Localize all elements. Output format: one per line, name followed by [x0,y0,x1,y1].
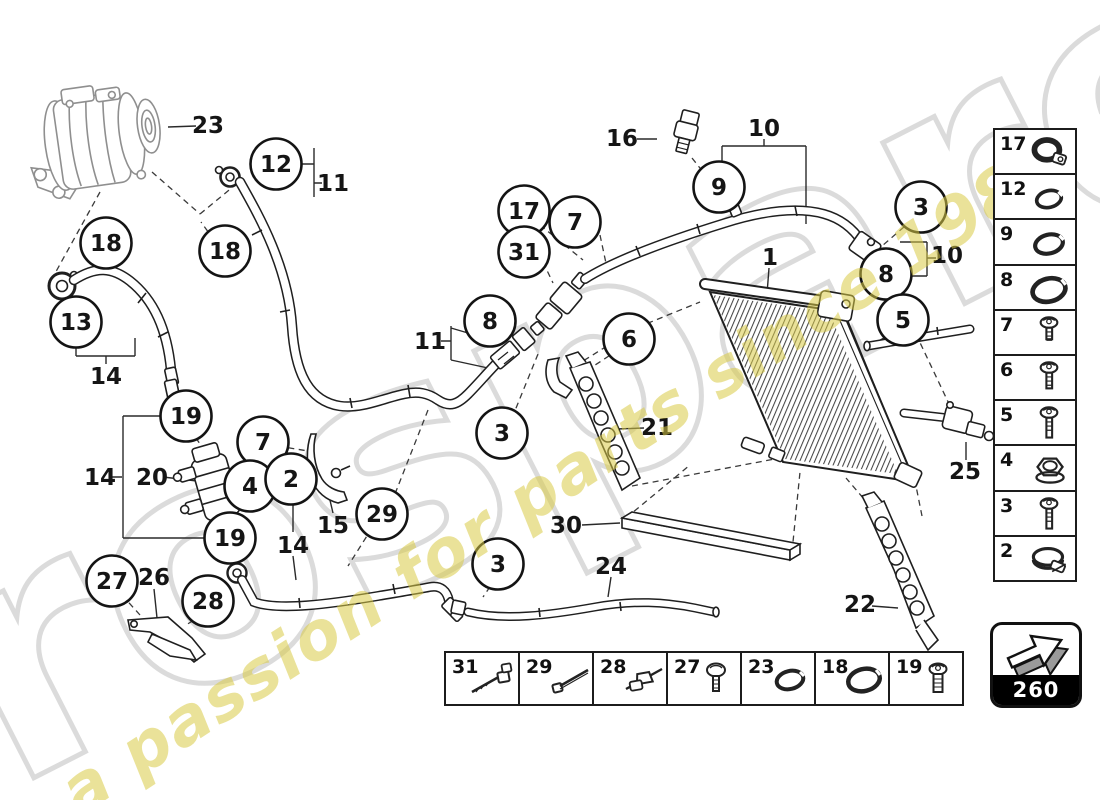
part-label-20: 20 [136,465,168,491]
legend-part-29[interactable]: 29 [518,651,594,706]
legend-part-27[interactable]: 27 [666,651,742,706]
part-label-11: 11 [414,329,446,355]
sidebar-part-5[interactable]: 5 [993,399,1077,446]
svg-text:12: 12 [260,152,292,178]
compressor-part [21,77,168,203]
part-number: 8 [1000,269,1013,291]
svg-text:4: 4 [242,474,258,500]
parts-sidebar: 171298765432 [993,128,1077,582]
part-label-14: 14 [277,533,309,559]
part-number: 4 [1000,449,1013,471]
svg-text:29: 29 [366,502,398,528]
part-number: 17 [1000,133,1026,155]
screw-pan-icon [692,659,740,703]
svg-text:17: 17 [508,199,540,225]
part-number: 9 [1000,223,1013,245]
callout-2[interactable]: 2 [266,454,317,505]
legend-part-28[interactable]: 28 [592,651,668,706]
part-label-25: 25 [949,459,981,485]
callout-6[interactable]: 6 [604,314,655,365]
oring-lg-icon [1024,268,1074,314]
tie-icon [544,659,592,703]
oring-lg-icon [840,659,888,703]
part-number: 6 [1000,359,1013,381]
part-label-14: 14 [90,364,122,390]
screw-icon [1024,358,1074,404]
screw-lg-icon [1024,494,1074,540]
part-label-23: 23 [192,113,224,139]
sidebar-part-12[interactable]: 12 [993,173,1077,220]
legend-part-19[interactable]: 19 [888,651,964,706]
parts-legend-strip: 31292827231819 [444,651,964,706]
svg-text:2: 2 [283,467,299,493]
svg-text:6: 6 [621,327,637,353]
part-number: 7 [1000,314,1013,336]
tie-mount-icon [618,659,666,703]
part-label-15: 15 [317,513,349,539]
callout-19[interactable]: 19 [161,391,212,442]
diagram-code-label: 260 01 [993,675,1079,705]
screw-sm-icon [1024,313,1074,359]
callout-18[interactable]: 18 [200,226,251,277]
svg-text:19: 19 [170,404,202,430]
callout-29[interactable]: 29 [357,489,408,540]
svg-text:13: 13 [60,310,92,336]
sidebar-part-4[interactable]: 4 [993,444,1077,491]
oring-icon [766,659,814,703]
part-number: 5 [1000,404,1013,426]
part-label-22: 22 [844,592,876,618]
part-number: 2 [1000,540,1013,562]
oring-sm-icon [1024,177,1074,223]
sidebar-part-2[interactable]: 2 [993,535,1077,582]
bracket-22 [862,492,938,650]
svg-text:5: 5 [895,308,911,334]
svg-text:3: 3 [494,421,510,447]
nut-icon [1024,448,1074,494]
part-label-14: 14 [84,465,116,491]
sidebar-part-7[interactable]: 7 [993,309,1077,356]
arrow-icon [999,629,1073,679]
callout-8[interactable]: 8 [465,296,516,347]
part-label-16: 16 [606,126,638,152]
parts-diagram-page: eurospares [0,0,1100,800]
legend-part-23[interactable]: 23 [740,651,816,706]
clamp-bolt-icon [1024,132,1074,178]
part-label-1: 1 [762,245,778,271]
svg-text:31: 31 [508,240,540,266]
sidebar-part-3[interactable]: 3 [993,490,1077,537]
part-number: 12 [1000,178,1026,200]
part-label-10: 10 [748,116,780,142]
svg-text:28: 28 [192,589,224,615]
clamp-band-icon [1024,539,1074,585]
callout-7[interactable]: 7 [550,197,601,248]
callout-19[interactable]: 19 [205,513,256,564]
sidebar-part-6[interactable]: 6 [993,354,1077,401]
callout-27[interactable]: 27 [87,556,138,607]
callout-3[interactable]: 3 [477,408,528,459]
callout-13[interactable]: 13 [51,297,102,348]
svg-text:7: 7 [567,210,583,236]
legend-part-18[interactable]: 18 [814,651,890,706]
sidebar-part-9[interactable]: 9 [993,218,1077,265]
svg-text:18: 18 [90,231,122,257]
svg-text:18: 18 [209,239,241,265]
sidebar-part-8[interactable]: 8 [993,264,1077,311]
part-label-11: 11 [317,171,349,197]
callout-28[interactable]: 28 [183,576,234,627]
callout-18[interactable]: 18 [81,218,132,269]
bolt-icon [914,659,962,703]
svg-text:8: 8 [482,309,498,335]
svg-text:19: 19 [214,526,246,552]
callout-31[interactable]: 31 [499,227,550,278]
legend-part-31[interactable]: 31 [444,651,520,706]
part-label-24: 24 [595,554,627,580]
part-number: 3 [1000,495,1013,517]
callout-9[interactable]: 9 [694,162,745,213]
oring-icon [1024,222,1074,268]
diagram-code-box[interactable]: 260 01 [990,622,1082,708]
svg-text:7: 7 [255,430,271,456]
svg-text:9: 9 [711,175,727,201]
sidebar-part-17[interactable]: 17 [993,128,1077,175]
svg-text:27: 27 [96,569,128,595]
part-label-26: 26 [138,565,170,591]
tie-clip-icon [470,659,518,703]
callout-12[interactable]: 12 [251,139,302,190]
screw-lg-icon [1024,403,1074,449]
